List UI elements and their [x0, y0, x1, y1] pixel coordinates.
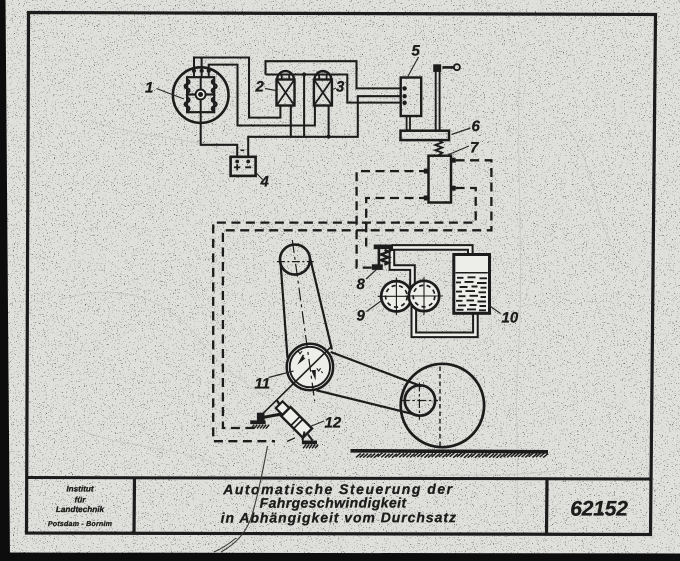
svg-text:in Abhängigkeit vom Durchsatz: in Abhängigkeit vom Durchsatz — [221, 509, 457, 526]
svg-text:2: 2 — [254, 78, 264, 95]
svg-text:5: 5 — [411, 42, 420, 59]
svg-text:4: 4 — [259, 173, 269, 190]
svg-text:10: 10 — [501, 309, 518, 326]
svg-text:für: für — [75, 495, 87, 504]
svg-text:11: 11 — [254, 375, 270, 392]
svg-text:Institut: Institut — [66, 484, 94, 493]
svg-text:62152: 62152 — [570, 497, 628, 520]
svg-text:Potsdam - Bornim: Potsdam - Bornim — [48, 520, 113, 528]
svg-text:6: 6 — [471, 118, 480, 135]
svg-text:3: 3 — [336, 78, 345, 95]
svg-text:Landtechnik: Landtechnik — [56, 505, 105, 514]
svg-text:1: 1 — [145, 79, 153, 96]
svg-text:7: 7 — [470, 139, 479, 156]
svg-text:9: 9 — [356, 307, 365, 324]
svg-text:8: 8 — [356, 276, 365, 293]
svg-text:12: 12 — [324, 414, 341, 431]
